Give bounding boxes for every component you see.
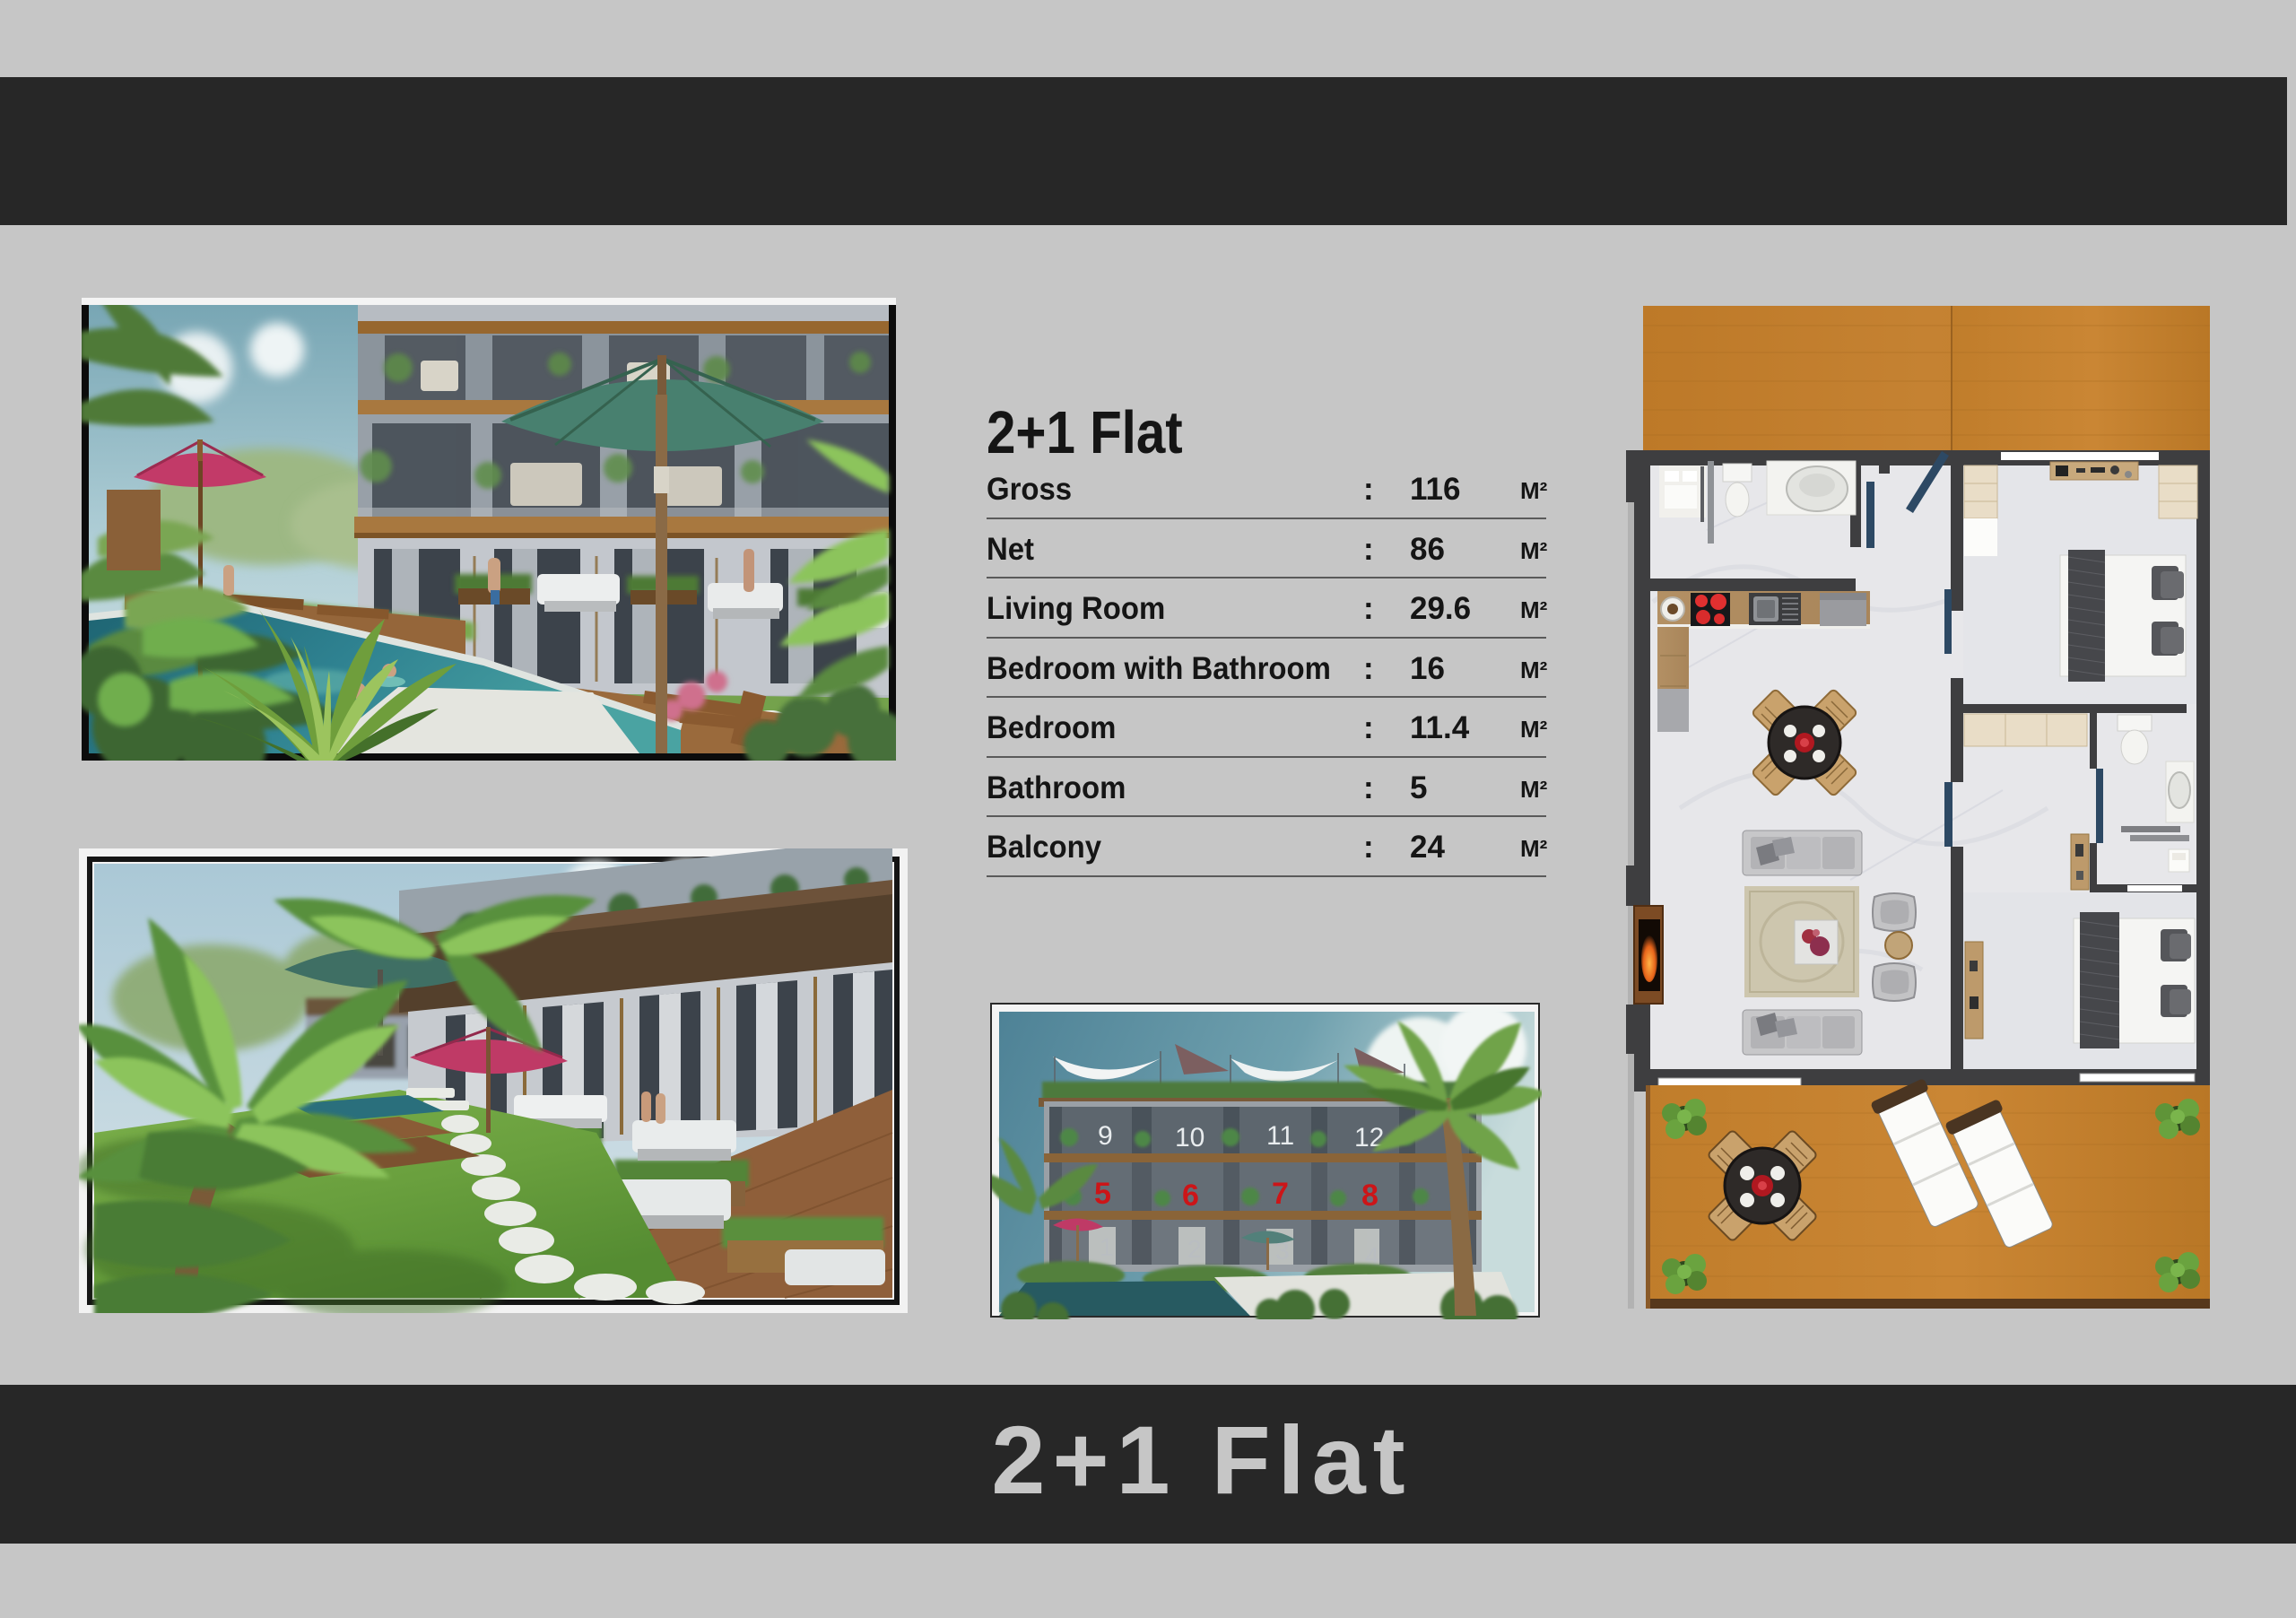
svg-text:7: 7	[1272, 1177, 1289, 1211]
svg-text:9: 9	[1098, 1121, 1113, 1151]
svg-text:8: 8	[1361, 1179, 1378, 1213]
svg-text:10: 10	[1175, 1123, 1205, 1153]
svg-text:2: 2	[1187, 1235, 1202, 1263]
svg-text:11: 11	[1266, 1121, 1294, 1151]
svg-text:5: 5	[1094, 1177, 1111, 1211]
svg-text:6: 6	[1182, 1179, 1199, 1213]
svg-text:1: 1	[1100, 1233, 1114, 1261]
